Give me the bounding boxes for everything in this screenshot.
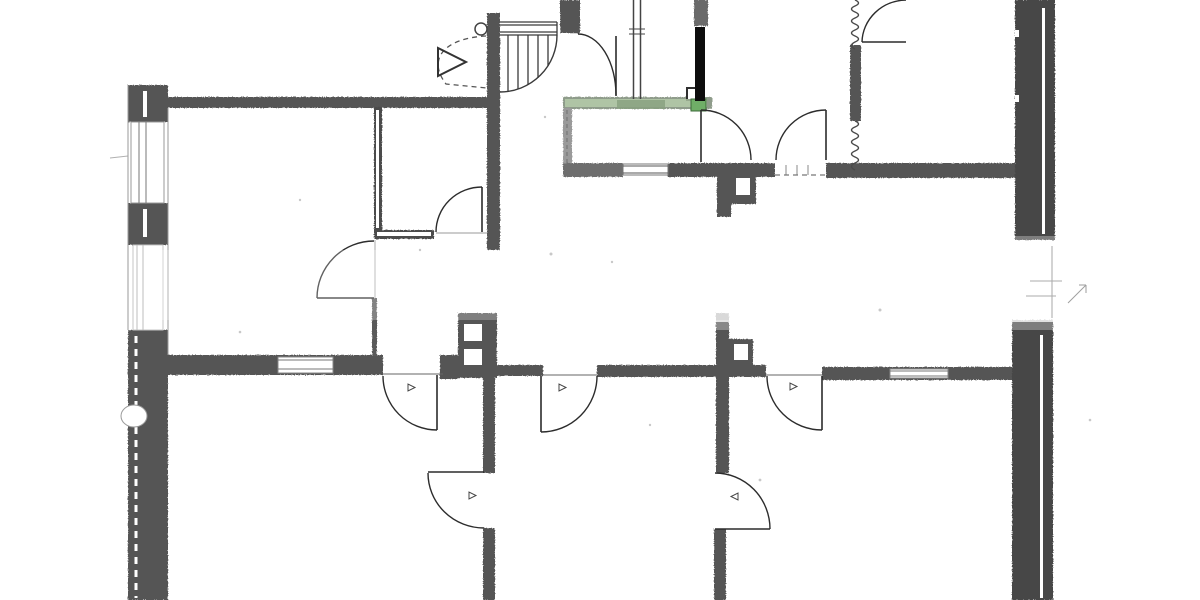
wall-17 bbox=[168, 355, 383, 375]
black-door-leaf-group bbox=[695, 27, 705, 101]
wall-4 bbox=[487, 13, 500, 250]
wall-8 bbox=[563, 163, 623, 177]
speck-6 bbox=[1089, 419, 1092, 422]
door-arc-10 bbox=[715, 473, 770, 529]
speck-3 bbox=[879, 309, 882, 312]
opening-9 bbox=[734, 344, 748, 360]
wall-27 bbox=[714, 529, 726, 600]
wall-19 bbox=[597, 365, 766, 377]
black-door-leaf-0 bbox=[695, 27, 705, 101]
opening-4 bbox=[376, 110, 379, 228]
stair-newel-circle-group bbox=[475, 23, 487, 35]
wall-5 bbox=[560, 0, 580, 33]
opening-10 bbox=[278, 357, 333, 373]
railing-line-group bbox=[629, 0, 645, 99]
speck-7 bbox=[299, 199, 301, 201]
wall-15 bbox=[1015, 0, 1055, 240]
wall-21 bbox=[458, 313, 497, 378]
opening-0 bbox=[143, 91, 147, 117]
speck-5 bbox=[759, 479, 762, 482]
wall-12 bbox=[717, 165, 731, 217]
wall-1 bbox=[128, 203, 168, 245]
wall-16 bbox=[1012, 320, 1053, 600]
door-swing-marker-group bbox=[408, 383, 797, 500]
opening-11 bbox=[890, 369, 948, 378]
wall-0 bbox=[128, 85, 168, 122]
opening-18 bbox=[1015, 95, 1019, 102]
speck-2 bbox=[419, 249, 421, 251]
stair-walkline-0 bbox=[438, 36, 487, 88]
speck-9 bbox=[544, 116, 546, 118]
wall-10 bbox=[826, 163, 1015, 178]
wall-24 bbox=[483, 528, 495, 600]
door-swing-marker-1 bbox=[559, 384, 566, 391]
opening-5 bbox=[377, 232, 431, 236]
scan-wash-0 bbox=[500, 244, 1200, 322]
speck-1 bbox=[611, 261, 613, 263]
detail-line-group bbox=[110, 85, 948, 376]
scanned-floor-plan-page bbox=[0, 0, 1200, 600]
wall-blob-group bbox=[121, 405, 147, 427]
opening-6 bbox=[464, 324, 482, 341]
door-arc-2 bbox=[701, 110, 751, 160]
door-swing-marker-3 bbox=[469, 492, 476, 499]
scan-wash-group bbox=[160, 236, 1200, 330]
wall-blob-0 bbox=[121, 405, 147, 427]
opening-13 bbox=[775, 164, 826, 176]
wall-25 bbox=[716, 313, 729, 473]
detail-line-13 bbox=[110, 156, 128, 158]
opening-7 bbox=[464, 349, 482, 365]
scan-wash-3 bbox=[160, 250, 500, 320]
door-arc-5 bbox=[862, 0, 906, 42]
wall-23 bbox=[483, 378, 495, 473]
door-arc-9 bbox=[428, 473, 484, 528]
opening-1 bbox=[143, 209, 147, 237]
opening-16 bbox=[1040, 335, 1043, 598]
wall-14 bbox=[850, 45, 861, 121]
door-arc-4 bbox=[578, 34, 616, 95]
door-swing-marker-2 bbox=[790, 383, 797, 390]
green-tint-1 bbox=[617, 100, 665, 109]
door-arc-8 bbox=[767, 376, 822, 430]
insulation-squiggle-0 bbox=[852, 0, 859, 49]
scan-wash-1 bbox=[500, 236, 1200, 246]
wall-22 bbox=[440, 355, 458, 379]
floor-plan-drawing bbox=[0, 0, 1200, 600]
stair-newel-circle-0 bbox=[475, 23, 487, 35]
insulation-squiggle-1 bbox=[852, 121, 859, 170]
stair-line-group bbox=[500, 22, 557, 91]
door-arc-3 bbox=[776, 110, 826, 160]
wall-3 bbox=[168, 97, 487, 108]
green-tint-group bbox=[565, 99, 707, 111]
wall-11 bbox=[694, 0, 708, 26]
door-swing-marker-4 bbox=[731, 493, 738, 500]
speck-8 bbox=[649, 424, 651, 426]
stair-walkline-group bbox=[438, 36, 487, 88]
door-arc-7 bbox=[541, 376, 597, 432]
opening-17 bbox=[1015, 30, 1019, 37]
opening-2 bbox=[131, 122, 164, 203]
door-swing-marker-0 bbox=[408, 384, 415, 391]
door-arc-6 bbox=[383, 376, 437, 430]
speck-4 bbox=[239, 331, 242, 334]
scan-wash-2 bbox=[500, 320, 1200, 330]
door-arc-0 bbox=[436, 187, 482, 232]
opening-15 bbox=[1042, 8, 1045, 234]
opening-8 bbox=[736, 178, 750, 195]
wall-2 bbox=[128, 330, 168, 600]
speck-0 bbox=[550, 253, 553, 256]
